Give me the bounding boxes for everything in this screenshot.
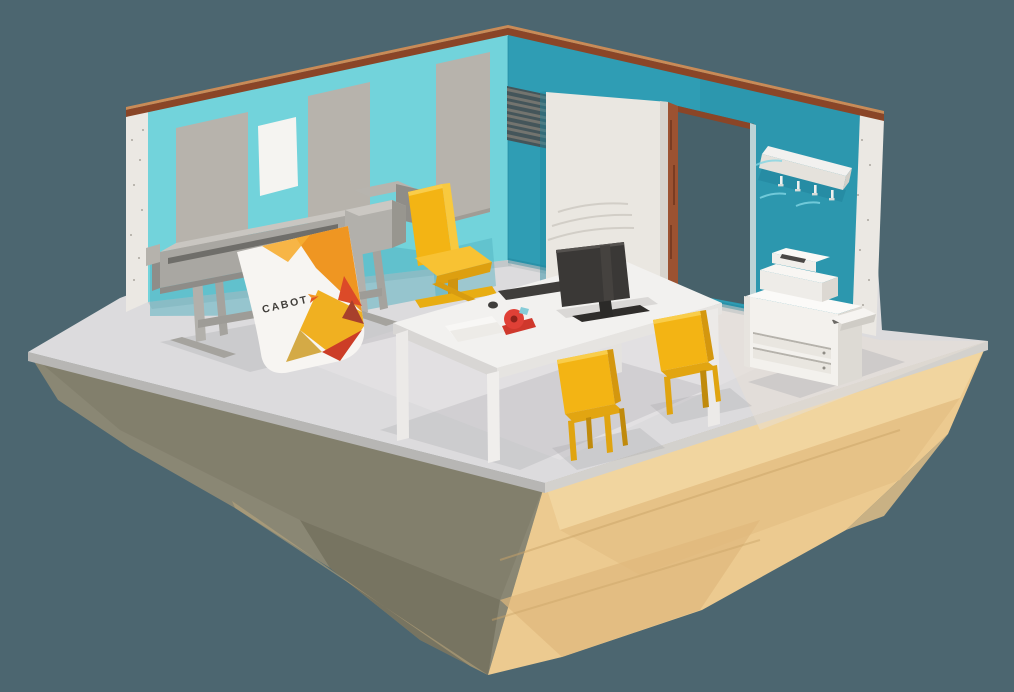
hook-foot [778,184,784,186]
hook-foot [829,198,835,200]
hook-stem [797,181,800,190]
drawer-handle-dot [823,352,826,355]
speckle [861,139,863,141]
monitor-panel [556,242,630,307]
wall-poster [258,117,298,196]
hook-stem [831,190,834,199]
speckle [857,194,859,196]
office-3d-illustration: CABOT [0,0,1014,692]
speckle [142,129,144,131]
speckle [130,234,132,236]
tape-dispenser-hole [511,316,518,323]
hook-stem [814,185,817,194]
jamb-streak [670,120,672,150]
speckle [139,159,141,161]
speckle [867,219,869,221]
speckle [869,164,871,166]
speckle [133,279,135,281]
speckle [859,249,861,251]
speckle [862,304,864,306]
jamb-streak [670,225,672,259]
plotter-right-unit-side [392,200,406,248]
speckle [868,279,870,281]
copier-left-edge [744,296,750,368]
desk-leg-front [487,371,500,463]
hook-stem [780,176,783,185]
doorway-opening [678,106,754,306]
hook-foot [795,189,801,191]
jamb-streak [673,165,675,205]
speckle [138,257,140,259]
desk-leg-left [396,330,409,441]
illustration-stage: CABOT [0,0,1014,692]
speckle [133,184,135,186]
left-wall-cross-section [126,109,148,312]
speckle [131,139,133,141]
hook-foot [812,193,818,195]
doorway-jamb-right [750,123,756,306]
drawer-handle-dot [823,367,826,370]
doorway [668,102,756,306]
speckle [141,209,143,211]
mouse [488,302,498,309]
